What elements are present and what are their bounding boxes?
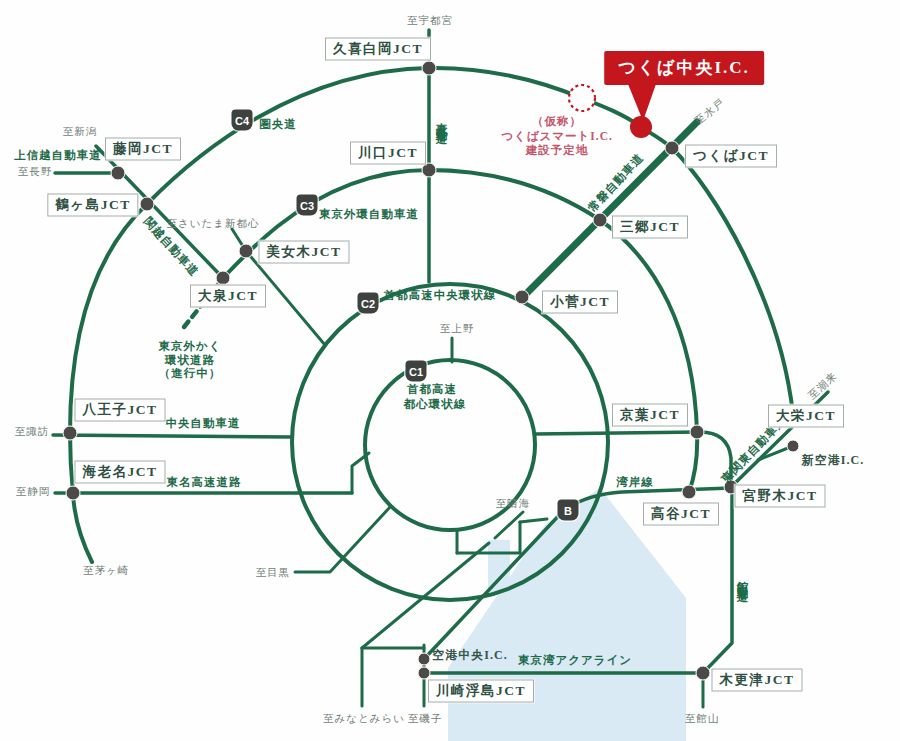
road-keiyo-road	[535, 432, 731, 487]
node-keiyo-jct	[690, 425, 704, 439]
callout-tail	[628, 84, 656, 121]
node-kawaguchi-jct	[422, 163, 436, 177]
node-kuki-shiraoka-jct	[422, 61, 436, 75]
node-tsukuba-jct	[665, 141, 679, 155]
node-kawasaki-ukishima-jct	[418, 667, 430, 679]
node-oizumi-jct	[216, 271, 230, 285]
road-kanetsu-expressway	[96, 146, 223, 278]
node-fujioka-jct	[111, 166, 125, 180]
tsukuba-chuo-ic-dot	[630, 116, 652, 138]
road-higashi-kanto-expressway	[731, 392, 828, 487]
node-kosuge-jct	[515, 290, 529, 304]
tokyo-bay	[448, 488, 686, 741]
node-ebina-jct	[66, 486, 80, 500]
node-bijogi-jct	[239, 244, 253, 258]
road-gaikaku-under-construction	[184, 281, 221, 327]
road-gaikan-c3	[223, 170, 697, 492]
node-miyanogi-jct	[724, 480, 738, 494]
bay-strip	[488, 540, 510, 592]
node-shin-kuko-jct	[787, 440, 799, 452]
node-misato-jct	[593, 213, 607, 227]
road-south-link	[520, 519, 547, 522]
road-yokohane-line	[362, 543, 489, 648]
expressway-network-map: C4C3C2C1B至宇都宮東北自動車道圏央道至新潟上信越自動車道至長野関越自動車…	[0, 0, 900, 741]
planned-smart-ic-circle	[569, 85, 595, 111]
node-tsurugashima-jct	[140, 197, 154, 211]
road-toshin-kanjo-c1	[365, 360, 535, 530]
road-chuo-kanjo-c2	[292, 284, 608, 600]
node-hachioji-jct	[63, 426, 77, 440]
node-kisarazu-jct	[696, 666, 710, 680]
node-daiei-jct	[786, 407, 800, 421]
road-chuo-expressway	[53, 435, 292, 437]
node-koya-jct	[682, 485, 696, 499]
node-kuko-chuo-jct	[418, 653, 430, 665]
map-canvas	[0, 0, 900, 741]
road-tateyama-expressway	[703, 487, 732, 673]
